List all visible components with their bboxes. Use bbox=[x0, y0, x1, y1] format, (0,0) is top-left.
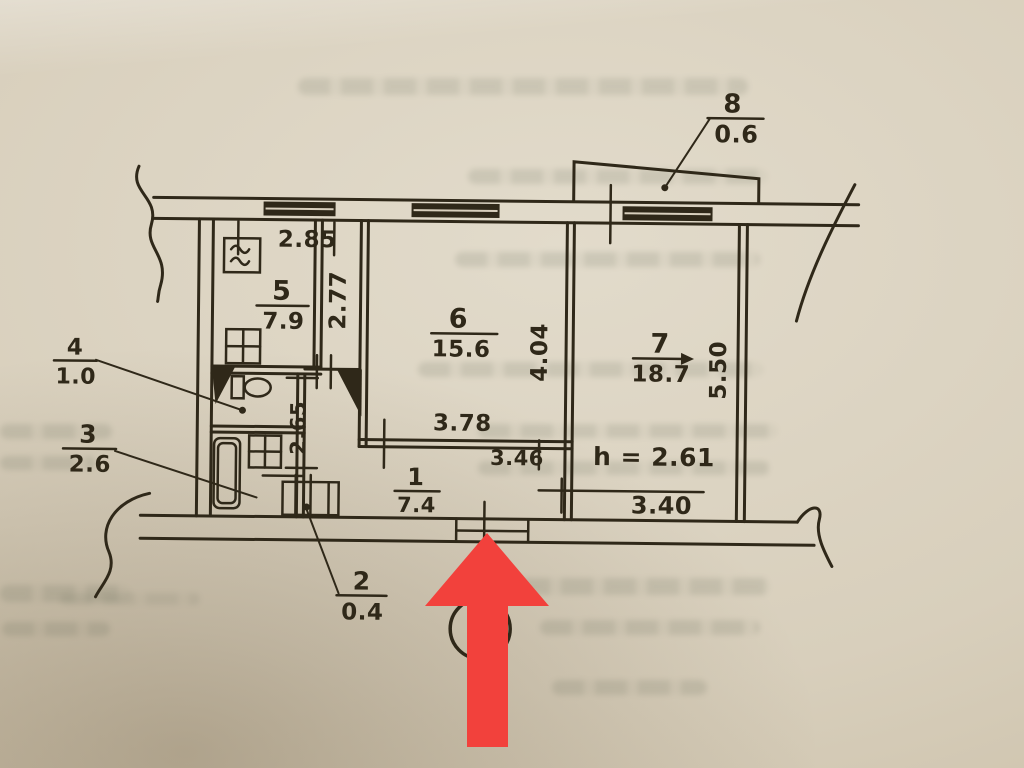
red-arrow-pointer bbox=[425, 533, 549, 747]
annotation-layer bbox=[0, 0, 1024, 768]
photographed-floor-plan-page: 5 7.9 6 15.6 7 18.7 1 7.4 4 1.0 3 2.6 2 … bbox=[0, 0, 1024, 768]
